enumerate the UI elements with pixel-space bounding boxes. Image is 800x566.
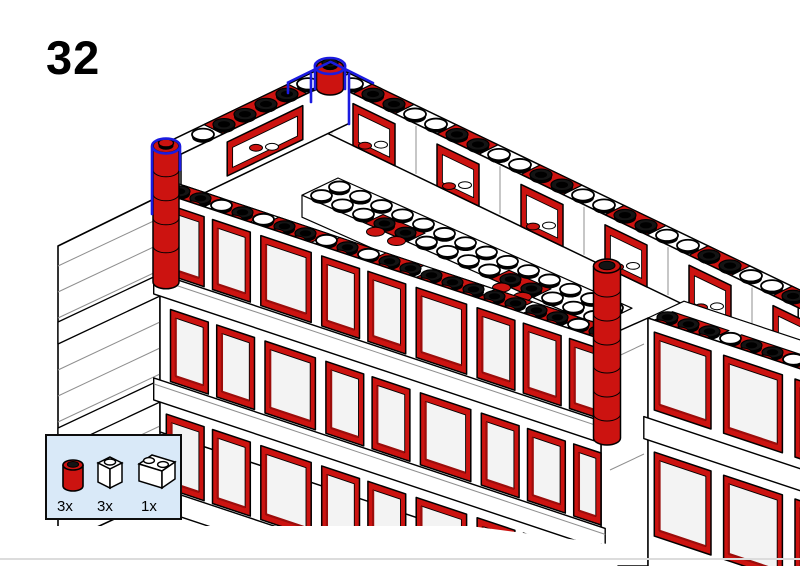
brick-1x2-icon (129, 446, 181, 496)
part-quantity: 3x (97, 498, 113, 515)
part-quantity: 1x (141, 498, 157, 515)
corner-round-brick (317, 59, 344, 95)
part-quantity: 3x (57, 498, 73, 515)
corner-cylinder-left (153, 139, 179, 289)
parts-callout-box: 3x 3x 1x (45, 434, 182, 520)
brick-1x1-icon (93, 450, 129, 496)
round-brick-icon (55, 452, 91, 496)
corner-cylinder-step (594, 259, 621, 445)
page-bottom-rule (0, 558, 800, 560)
instruction-page: 32 3x 3x 1x (0, 0, 800, 566)
